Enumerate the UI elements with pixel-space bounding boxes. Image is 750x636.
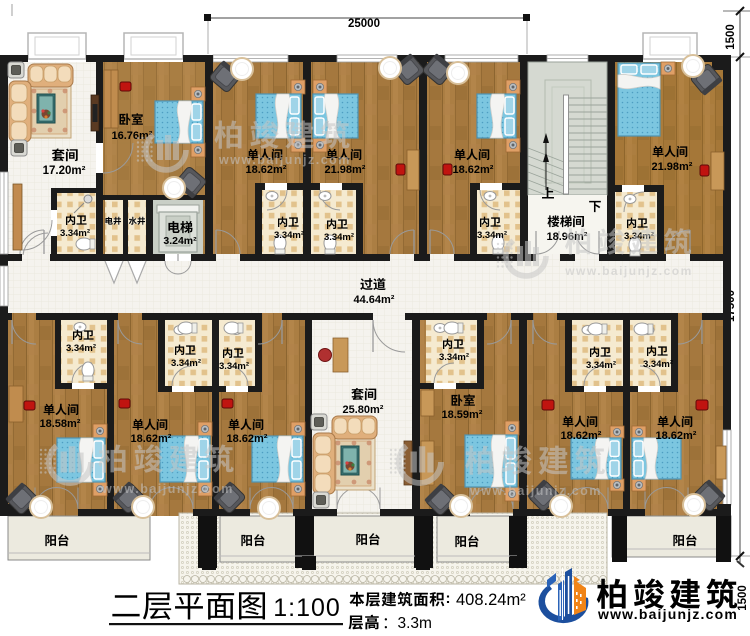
svg-text:www.baijunjz.com: www.baijunjz.com	[101, 482, 234, 496]
svg-text:17.20m²: 17.20m²	[43, 165, 86, 177]
svg-text:18.62m²: 18.62m²	[656, 430, 697, 442]
svg-text:3.34m²: 3.34m²	[643, 359, 673, 370]
svg-text:www.baijunjz.com: www.baijunjz.com	[469, 484, 602, 498]
svg-text:3.34m²: 3.34m²	[586, 360, 616, 371]
svg-text:18.62m²: 18.62m²	[227, 433, 268, 445]
svg-text:3.34m²: 3.34m²	[324, 232, 354, 243]
svg-text:25.80m²: 25.80m²	[343, 404, 384, 416]
svg-text:：3.3m: ：3.3m	[382, 615, 432, 632]
svg-text:1500: 1500	[737, 585, 749, 611]
svg-text:3.24m²: 3.24m²	[163, 235, 197, 247]
svg-text:3.34m²: 3.34m²	[66, 343, 96, 354]
svg-text::: :	[446, 590, 451, 607]
svg-text:3.34m²: 3.34m²	[439, 352, 469, 363]
svg-text:21.98m²: 21.98m²	[652, 161, 693, 173]
svg-text:www.baijunjz.com: www.baijunjz.com	[218, 153, 351, 167]
svg-text:18.58m²: 18.58m²	[40, 418, 81, 430]
svg-text:18.62m²: 18.62m²	[131, 433, 172, 445]
svg-text:18.59m²: 18.59m²	[442, 409, 483, 421]
svg-text:1:100: 1:100	[273, 594, 341, 622]
svg-text:3.34m²: 3.34m²	[274, 230, 304, 241]
svg-text:3.34m²: 3.34m²	[477, 230, 507, 241]
svg-text:18.62m²: 18.62m²	[453, 164, 494, 176]
svg-text:3.34m²: 3.34m²	[60, 228, 90, 239]
svg-text:408.24m²: 408.24m²	[456, 591, 526, 609]
svg-text:3.34m²: 3.34m²	[171, 358, 201, 369]
svg-text:44.64m²: 44.64m²	[354, 294, 395, 306]
svg-text:18.62m²: 18.62m²	[561, 430, 602, 442]
svg-text:www.baijunjz.com: www.baijunjz.com	[597, 606, 738, 622]
svg-text:1500: 1500	[725, 24, 737, 50]
svg-text:www.baijunjz.com: www.baijunjz.com	[564, 264, 693, 278]
svg-text:25000: 25000	[348, 18, 380, 30]
svg-text:3.34m²: 3.34m²	[219, 361, 249, 372]
